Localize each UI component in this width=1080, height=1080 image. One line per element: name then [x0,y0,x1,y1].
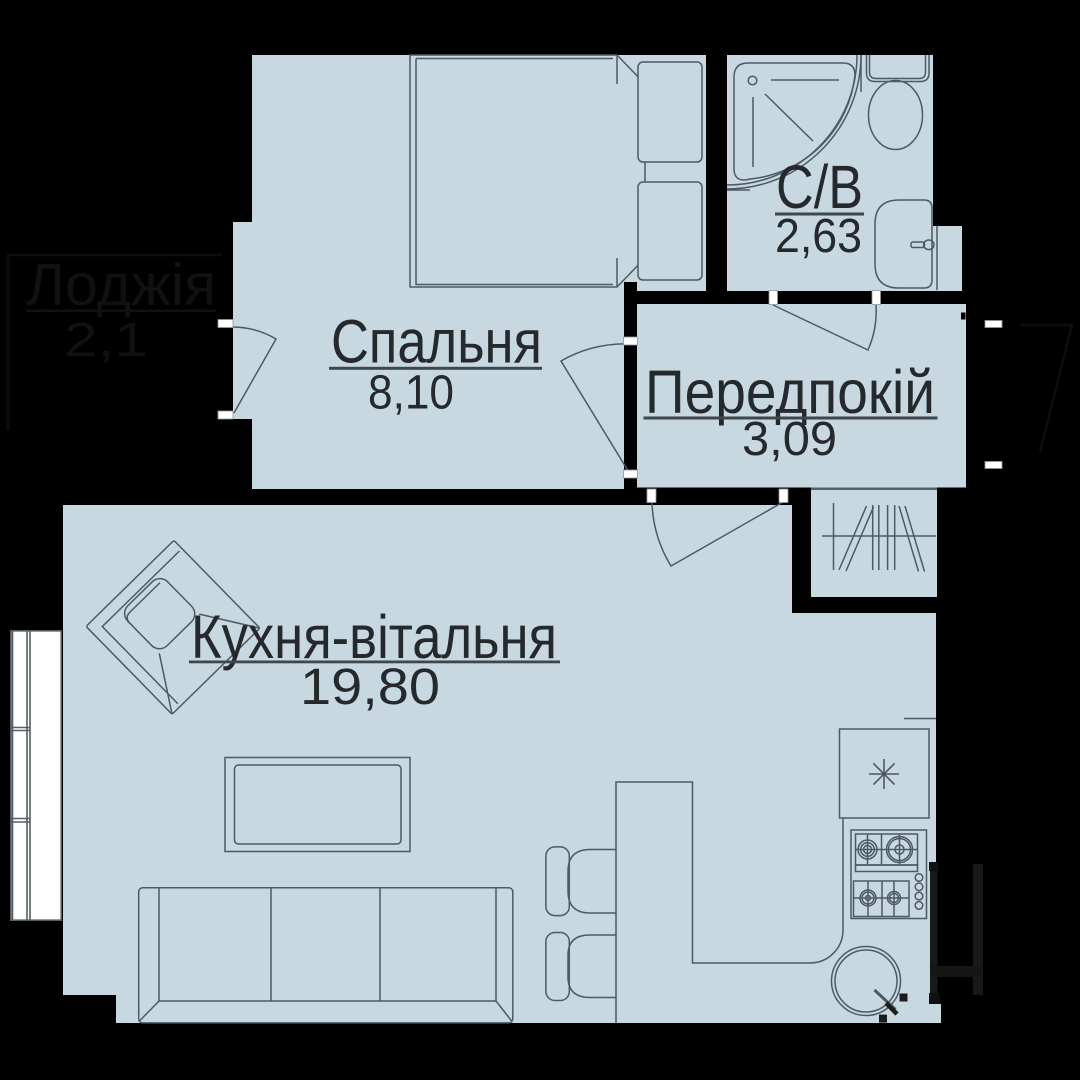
svg-text:Лоджія: Лоджія [26,252,216,318]
svg-text:2,63: 2,63 [775,210,862,263]
svg-text:8,10: 8,10 [368,366,454,419]
svg-text:3,09: 3,09 [742,413,837,466]
svg-text:Спальня: Спальня [331,308,542,376]
svg-text:2,1: 2,1 [64,314,148,367]
svg-text:19,80: 19,80 [300,658,440,715]
